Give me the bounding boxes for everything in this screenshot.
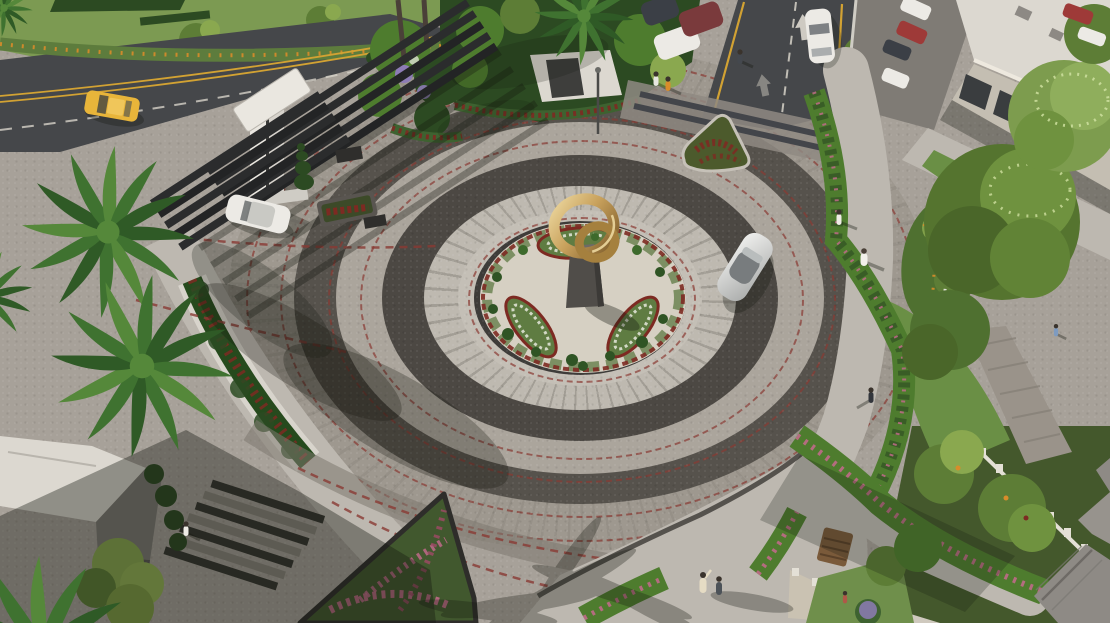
aerial-render-canvas bbox=[0, 0, 1110, 623]
central-garden-island bbox=[480, 193, 686, 373]
pedestrian bbox=[843, 591, 847, 603]
palm-tree bbox=[0, 234, 48, 358]
pedestrian bbox=[1054, 324, 1066, 339]
silver-sedan-roundabout bbox=[707, 228, 789, 322]
pedestrian bbox=[716, 576, 722, 595]
hedge-wall bbox=[50, 0, 185, 12]
scene-overlay bbox=[0, 0, 1110, 623]
